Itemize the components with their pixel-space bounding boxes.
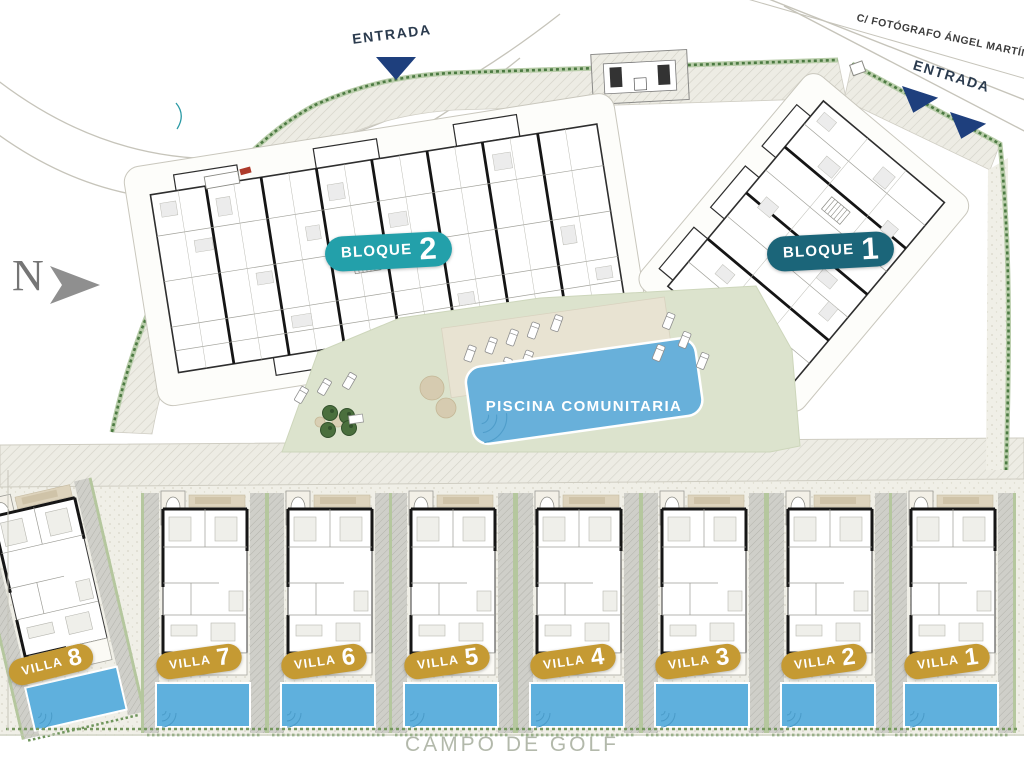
villa-8-name: VILLA — [20, 654, 64, 678]
villa-3-name: VILLA — [667, 652, 711, 672]
pool-label: PISCINA COMUNITARIA — [468, 398, 700, 415]
bloque-1-number: 1 — [860, 232, 879, 264]
site-plan: C/ FOTÓGRAFO ÁNGEL MARTÍN ENTRADA ENTRAD… — [0, 0, 1024, 768]
villa-6-name: VILLA — [293, 652, 337, 672]
site-plan-drawing — [0, 0, 1024, 768]
bloque-2-badge[interactable]: BLOQUE 2 — [324, 231, 452, 273]
villa-2-number: 2 — [840, 645, 857, 671]
bloque-2-name: BLOQUE — [341, 241, 413, 262]
villa-7-name: VILLA — [168, 652, 212, 672]
villa-5-name: VILLA — [416, 652, 460, 672]
villa-8-number: 8 — [66, 645, 85, 672]
golf-label: CAMPO DE GOLF — [0, 733, 1024, 757]
bloque-1-badge[interactable]: BLOQUE 1 — [766, 231, 894, 273]
villa-6-number: 6 — [340, 645, 357, 671]
street-marking — [176, 103, 181, 129]
villa-1-name: VILLA — [916, 652, 960, 672]
villa-1-number: 1 — [963, 645, 980, 671]
villa-4-name: VILLA — [542, 652, 586, 672]
villa-3-number: 3 — [714, 645, 731, 671]
bloque-2-number: 2 — [418, 232, 437, 264]
villa-2-name: VILLA — [793, 652, 837, 672]
villa-7-number: 7 — [215, 645, 232, 671]
north-arrow-icon — [50, 266, 100, 304]
villa-4-number: 4 — [589, 645, 606, 671]
north-label: N — [12, 250, 44, 301]
bloque-1-name: BLOQUE — [783, 241, 855, 262]
villa-5-number: 5 — [463, 645, 480, 671]
bench — [349, 414, 364, 424]
